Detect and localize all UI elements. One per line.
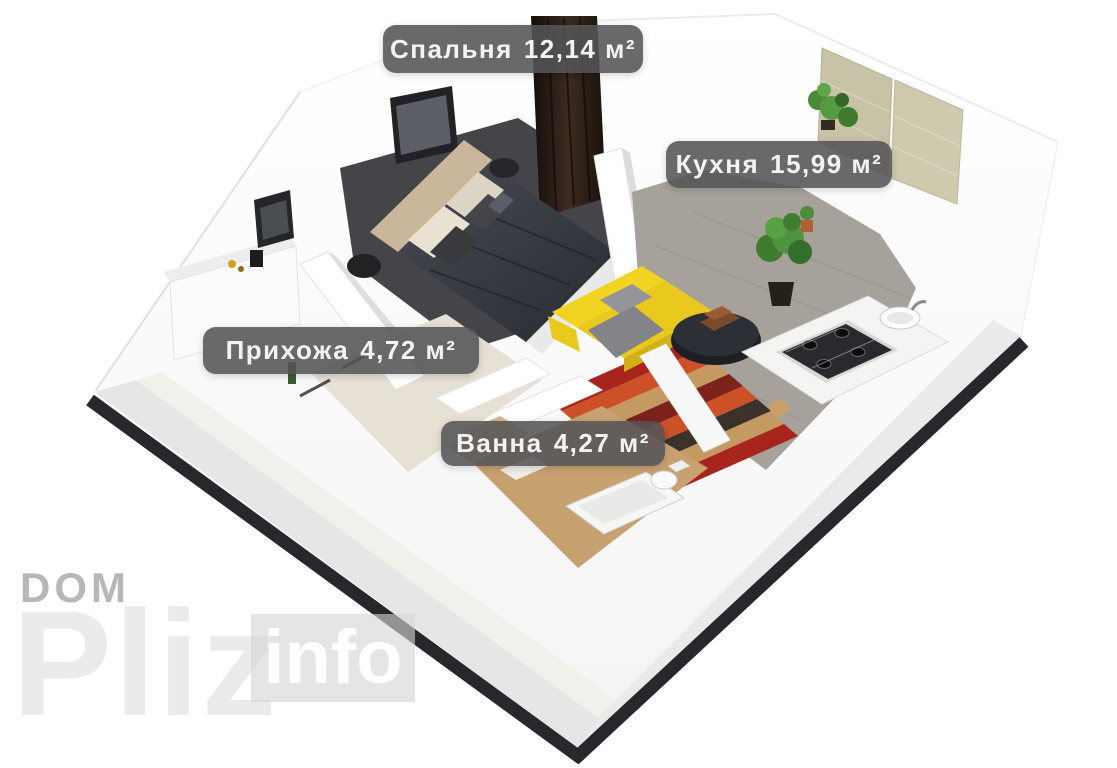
room-label-bedroom: Спальня 12,14 м²: [383, 25, 643, 73]
decor-bottle: [238, 266, 244, 272]
room-area: 4,27 м²: [554, 428, 650, 459]
decor-bottle: [228, 260, 236, 268]
apartment-3d-scene: [0, 0, 1117, 768]
room-name: Кухня: [676, 149, 759, 180]
decor-box: [250, 250, 263, 267]
floorplan-render: Спальня 12,14 м² Кухня 15,99 м² Прихожа …: [0, 0, 1117, 768]
toilet: [651, 471, 677, 489]
room-label-bathroom: Ванна 4,27 м²: [441, 421, 665, 466]
small-pot: [801, 220, 813, 232]
wall-art-icon: [390, 86, 458, 164]
room-area: 15,99 м²: [770, 149, 882, 180]
planter-box: [821, 120, 835, 130]
room-label-hallway: Прихожа 4,72 м²: [203, 327, 479, 374]
bedside-stool: [489, 158, 519, 178]
room-name: Спальня: [390, 34, 513, 65]
room-name: Прихожа: [226, 335, 350, 366]
room-label-kitchen: Кухня 15,99 м²: [666, 141, 892, 188]
room-area: 12,14 м²: [524, 34, 636, 65]
room-name: Ванна: [456, 428, 543, 459]
bedside-stool: [347, 254, 381, 278]
room-area: 4,72 м²: [360, 335, 456, 366]
